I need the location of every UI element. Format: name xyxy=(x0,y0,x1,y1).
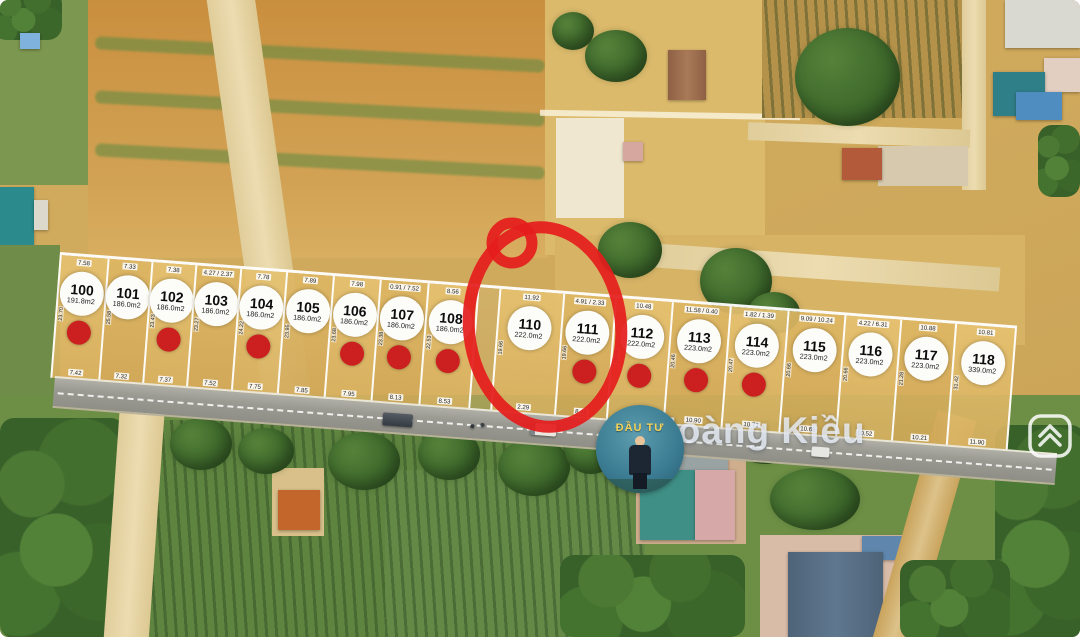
plot-side-dimension: 19.66 xyxy=(561,345,568,360)
tree-cluster xyxy=(585,30,647,82)
plot-bottom-dimension: 7.75 xyxy=(248,382,263,390)
building-barn xyxy=(668,50,706,100)
plot-area: 191.8m2 xyxy=(67,297,95,306)
plot-side-dimension: 25.58 xyxy=(106,310,113,325)
aerial-photo: 7.5823.70100191.8m27.427.3325.58101186.0… xyxy=(0,0,1080,637)
plot-area: 186.0m2 xyxy=(113,300,141,309)
plot-top-dimension: 8.56 xyxy=(446,287,461,295)
plot-bottom-dimension: 7.85 xyxy=(294,386,309,394)
plot-top-dimension: 7.58 xyxy=(77,259,92,267)
plot-area: 186.0m2 xyxy=(201,307,229,316)
plot-top-dimension: 7.78 xyxy=(256,273,271,281)
plot-number-badge: 116223.0m2 xyxy=(847,331,894,378)
tree-cluster xyxy=(900,560,1010,637)
plot-number-badge: 100191.8m2 xyxy=(58,271,105,318)
badge-title: ĐẦU TƯ xyxy=(596,422,684,434)
plot-top-dimension: 4.27 / 2.37 xyxy=(202,269,234,278)
plot-area: 186.0m2 xyxy=(293,314,321,323)
building-pink xyxy=(1044,58,1080,92)
sold-dot xyxy=(339,341,365,367)
building-white-large xyxy=(1005,0,1080,48)
tree-cluster xyxy=(598,222,662,278)
plot-top-dimension: 4.22 / 6.31 xyxy=(857,319,889,328)
building-slate-roof-large xyxy=(788,552,883,637)
plot-area: 222.0m2 xyxy=(573,336,601,345)
plot-area: 186.0m2 xyxy=(157,304,185,313)
field-patch xyxy=(0,245,60,405)
plot-side-dimension: 24.22 xyxy=(238,320,245,335)
plot-side-dimension: 21.28 xyxy=(898,371,905,386)
plot-number-badge: 111222.0m2 xyxy=(564,309,611,356)
plot-side-dimension: 23.38 xyxy=(378,331,385,346)
plot-area: 223.0m2 xyxy=(742,349,770,358)
plot-side-dimension: 22.53 xyxy=(426,335,433,350)
plot-area: 222.0m2 xyxy=(627,340,655,349)
plot-top-dimension: 0.91 / 7.52 xyxy=(388,283,420,292)
plot-side-dimension: 20.66 xyxy=(842,367,849,382)
plot-number-badge: 106186.0m2 xyxy=(331,292,378,339)
tree-cluster xyxy=(328,432,400,490)
plot-bottom-dimension: 7.42 xyxy=(68,368,83,376)
plot-number-badge: 115223.0m2 xyxy=(791,327,838,374)
plot-side-dimension: 23.70 xyxy=(58,306,65,321)
plot-number-badge: 107186.0m2 xyxy=(378,295,425,342)
building-pink-roof xyxy=(695,470,735,540)
plot-area: 186.0m2 xyxy=(387,321,415,330)
plot-top-dimension: 7.38 xyxy=(166,266,181,274)
plot-bottom-dimension: 7.95 xyxy=(341,389,356,397)
plot-area: 339.0m2 xyxy=(968,366,996,375)
building-red-roof xyxy=(842,148,882,180)
plot-area: 223.0m2 xyxy=(911,362,939,371)
plot-bottom-dimension: 8.40 xyxy=(574,407,589,415)
plot-top-dimension: 9.09 / 10.24 xyxy=(799,315,834,325)
plot-number-badge: 108186.0m2 xyxy=(427,299,474,346)
plot-side-dimension: 20.66 xyxy=(786,362,793,377)
plot-side-dimension: 23.68 xyxy=(331,327,338,342)
plot-bottom-dimension: 7.37 xyxy=(158,375,173,383)
sold-dot xyxy=(156,327,182,353)
home-chevron-logo-icon xyxy=(1026,412,1074,460)
plot-top-dimension: 7.89 xyxy=(302,276,317,284)
plot-area: 186.0m2 xyxy=(340,318,368,327)
plot-number-badge: 112222.0m2 xyxy=(618,314,665,361)
tree-cluster xyxy=(552,12,594,50)
advisor-badge: ĐẦU TƯ xyxy=(596,405,684,493)
building-white xyxy=(34,200,48,230)
plot-side-dimension: 20.47 xyxy=(728,358,735,373)
motorbike-dot xyxy=(470,424,474,428)
plot-top-dimension: 10.81 xyxy=(976,328,995,336)
plot-top-dimension: 7.98 xyxy=(349,280,364,288)
building-teal-roof xyxy=(0,187,34,245)
plot-117: 10.8821.28117223.0m210.21 xyxy=(891,320,955,447)
plot-number-badge: 105186.0m2 xyxy=(284,288,331,335)
plot-area: 223.0m2 xyxy=(684,344,712,353)
plot-area: 223.0m2 xyxy=(856,357,884,366)
truck-white xyxy=(530,423,557,437)
plot-area: 186.0m2 xyxy=(436,325,464,334)
plot-top-dimension: 10.48 xyxy=(635,302,654,310)
plot-top-dimension: 1.82 / 1.39 xyxy=(743,310,775,319)
plot-top-dimension: 4.91 / 2.33 xyxy=(574,297,606,306)
plot-side-dimension: 19.08 xyxy=(613,349,620,364)
sold-dot xyxy=(571,359,597,385)
sold-dot xyxy=(66,320,92,346)
plot-side-dimension: 23.95 xyxy=(284,324,291,339)
plot-bottom-dimension: 7.32 xyxy=(114,372,129,380)
plot-number-badge: 114223.0m2 xyxy=(733,322,780,369)
tree-cluster xyxy=(770,468,860,530)
building-shed-pink xyxy=(623,142,643,161)
driveway xyxy=(556,118,624,218)
plot-number-badge: 118339.0m2 xyxy=(960,340,1007,387)
plot-110: 11.9219.66110222.0m22.29 xyxy=(490,289,563,417)
lane-horizontal xyxy=(748,122,970,148)
courtyard xyxy=(878,146,968,186)
plot-number-badge: 104186.0m2 xyxy=(238,284,285,331)
tree-cluster xyxy=(1038,125,1080,197)
plot-side-dimension: 19.66 xyxy=(497,340,504,355)
plot-top-dimension: 10.88 xyxy=(919,324,938,332)
tree-cluster xyxy=(170,418,232,470)
plot-number-badge: 110222.0m2 xyxy=(506,305,553,352)
building-orange-roof xyxy=(278,490,320,530)
plot-bottom-dimension: 7.52 xyxy=(202,379,217,387)
sold-dot xyxy=(626,363,652,389)
advisor-photo-legs xyxy=(633,473,647,489)
plot-side-dimension: 20.46 xyxy=(670,353,677,368)
tree-cluster xyxy=(795,28,900,126)
plot-top-dimension: 7.33 xyxy=(123,263,138,271)
plot-side-dimension: 23.27 xyxy=(193,317,200,332)
plot-bottom-dimension: 8.53 xyxy=(437,397,452,405)
plot-number-badge: 117223.0m2 xyxy=(902,335,949,382)
van xyxy=(382,412,413,427)
plot-side-dimension: 23.43 xyxy=(149,313,156,328)
plot-area: 222.0m2 xyxy=(515,331,543,340)
plot-118: 10.8131.42118339.0m211.90 xyxy=(946,324,1017,451)
building-blue-roof xyxy=(1016,92,1062,120)
sold-dot xyxy=(741,372,767,398)
plot-bottom-dimension: 10.21 xyxy=(911,433,930,441)
sold-dot xyxy=(245,334,271,360)
plot-bottom-dimension: 2.29 xyxy=(516,403,531,411)
plot-top-dimension: 11.92 xyxy=(523,293,541,301)
plot-top-dimension: 11.58 / 0.40 xyxy=(684,306,719,316)
plot-bottom-dimension: 8.13 xyxy=(388,393,403,401)
plot-111: 4.91 / 2.3319.66111222.0m28.40 xyxy=(554,294,615,421)
plot-area: 186.0m2 xyxy=(246,311,274,320)
tree-cluster xyxy=(560,555,745,637)
building-blue-roof xyxy=(20,33,40,49)
advisor-photo-suit xyxy=(629,445,651,475)
plot-side-dimension: 31.42 xyxy=(953,375,960,390)
sold-dot xyxy=(683,368,709,394)
sold-dot xyxy=(435,349,461,375)
plot-area: 223.0m2 xyxy=(799,353,827,362)
plot-bottom-dimension: 11.90 xyxy=(968,438,986,446)
plot-number-badge: 113223.0m2 xyxy=(675,318,722,365)
tree-cluster xyxy=(238,428,294,474)
sold-dot xyxy=(386,345,412,371)
